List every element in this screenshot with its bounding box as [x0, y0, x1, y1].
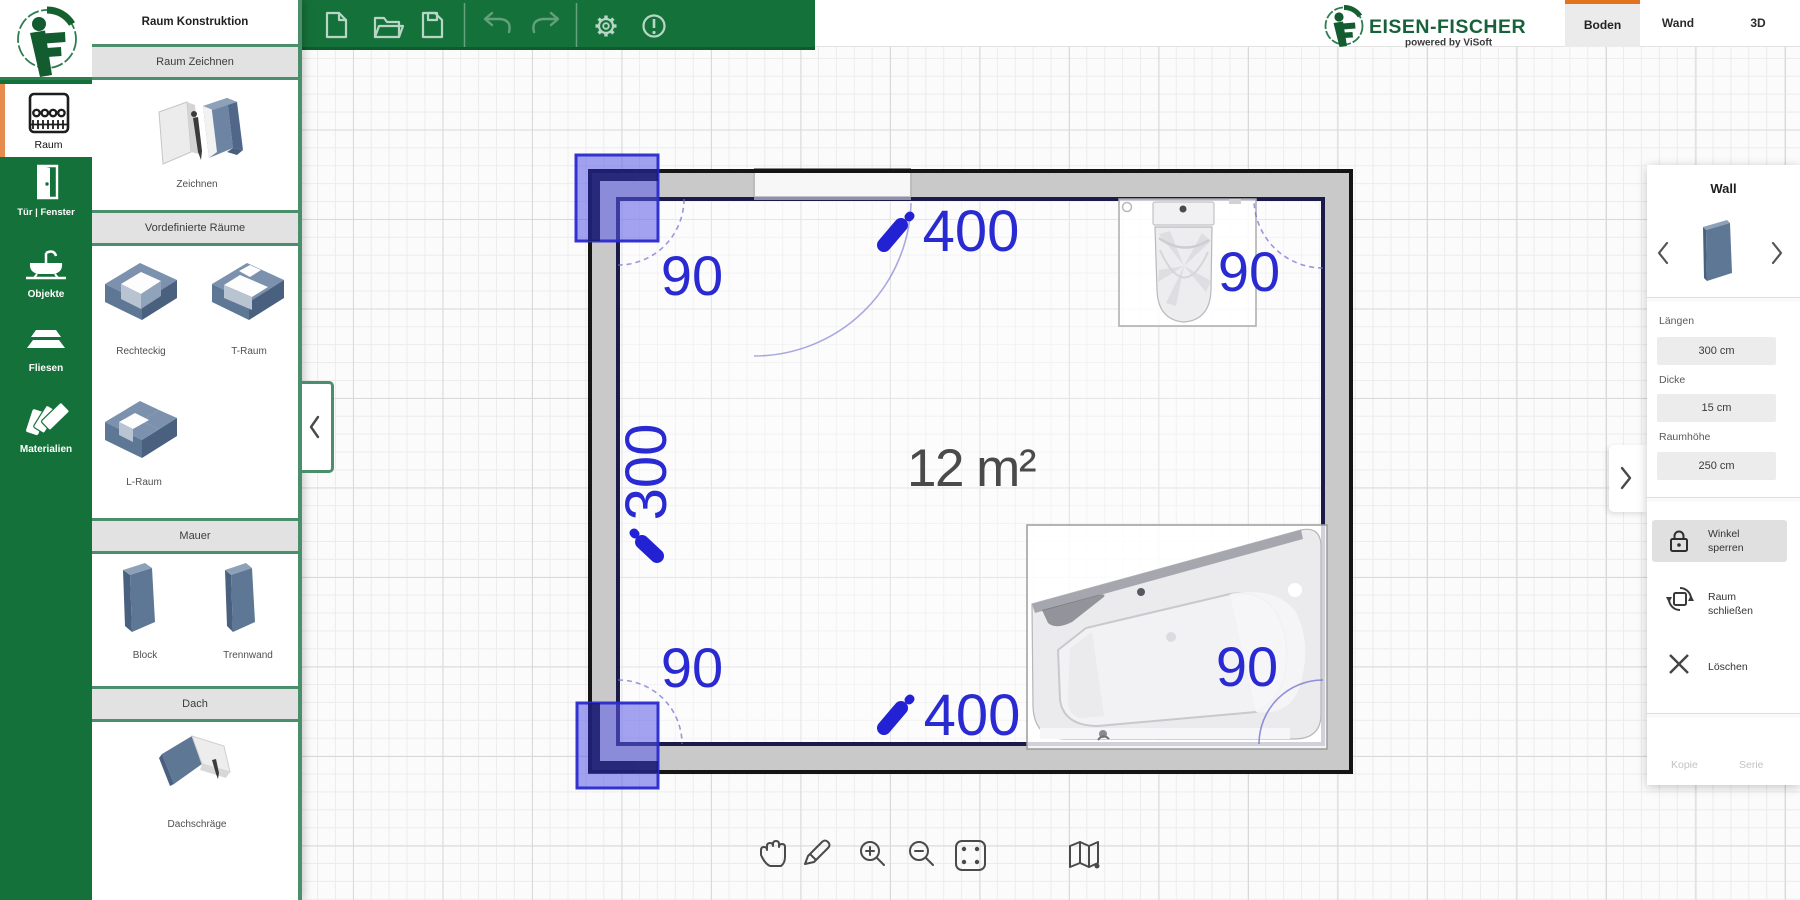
svg-text:EISEN-FISCHER: EISEN-FISCHER — [1369, 16, 1526, 38]
svg-text:300: 300 — [614, 424, 679, 521]
svg-text:12 m²: 12 m² — [907, 439, 1036, 498]
svg-text:400: 400 — [923, 199, 1020, 264]
svg-text:powered by ViSoft: powered by ViSoft — [1405, 38, 1493, 49]
svg-text:90: 90 — [661, 636, 723, 699]
svg-text:90: 90 — [1218, 240, 1280, 303]
svg-text:90: 90 — [661, 244, 723, 307]
svg-text:400: 400 — [924, 683, 1021, 748]
svg-text:90: 90 — [1216, 635, 1278, 698]
